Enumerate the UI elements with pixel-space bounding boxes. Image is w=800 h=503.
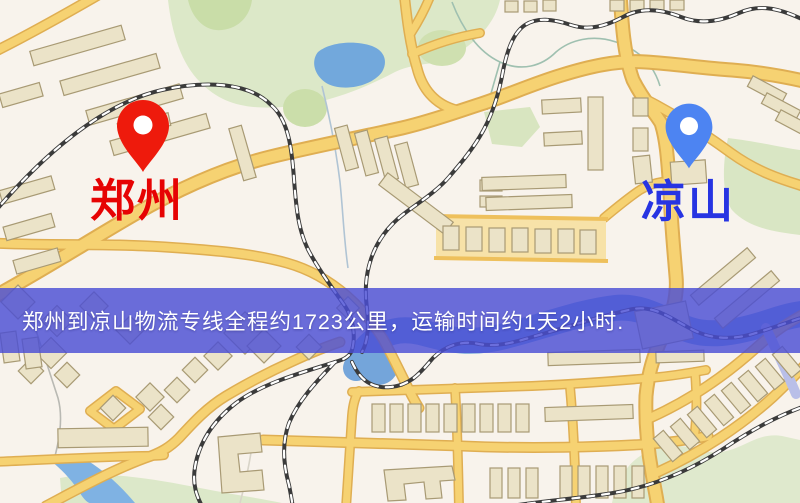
map-screenshot: 郑州 凉山 郑州到凉山物流专线全程约1723公里，运输时间约1天2小时. xyxy=(0,0,800,503)
route-banner-text: 郑州到凉山物流专线全程约1723公里，运输时间约1天2小时. xyxy=(0,305,624,336)
destination-label: 凉山 xyxy=(641,180,735,225)
origin-label: 郑州 xyxy=(90,179,184,224)
map-canvas xyxy=(0,0,800,503)
route-banner: 郑州到凉山物流专线全程约1723公里，运输时间约1天2小时. xyxy=(0,288,800,353)
